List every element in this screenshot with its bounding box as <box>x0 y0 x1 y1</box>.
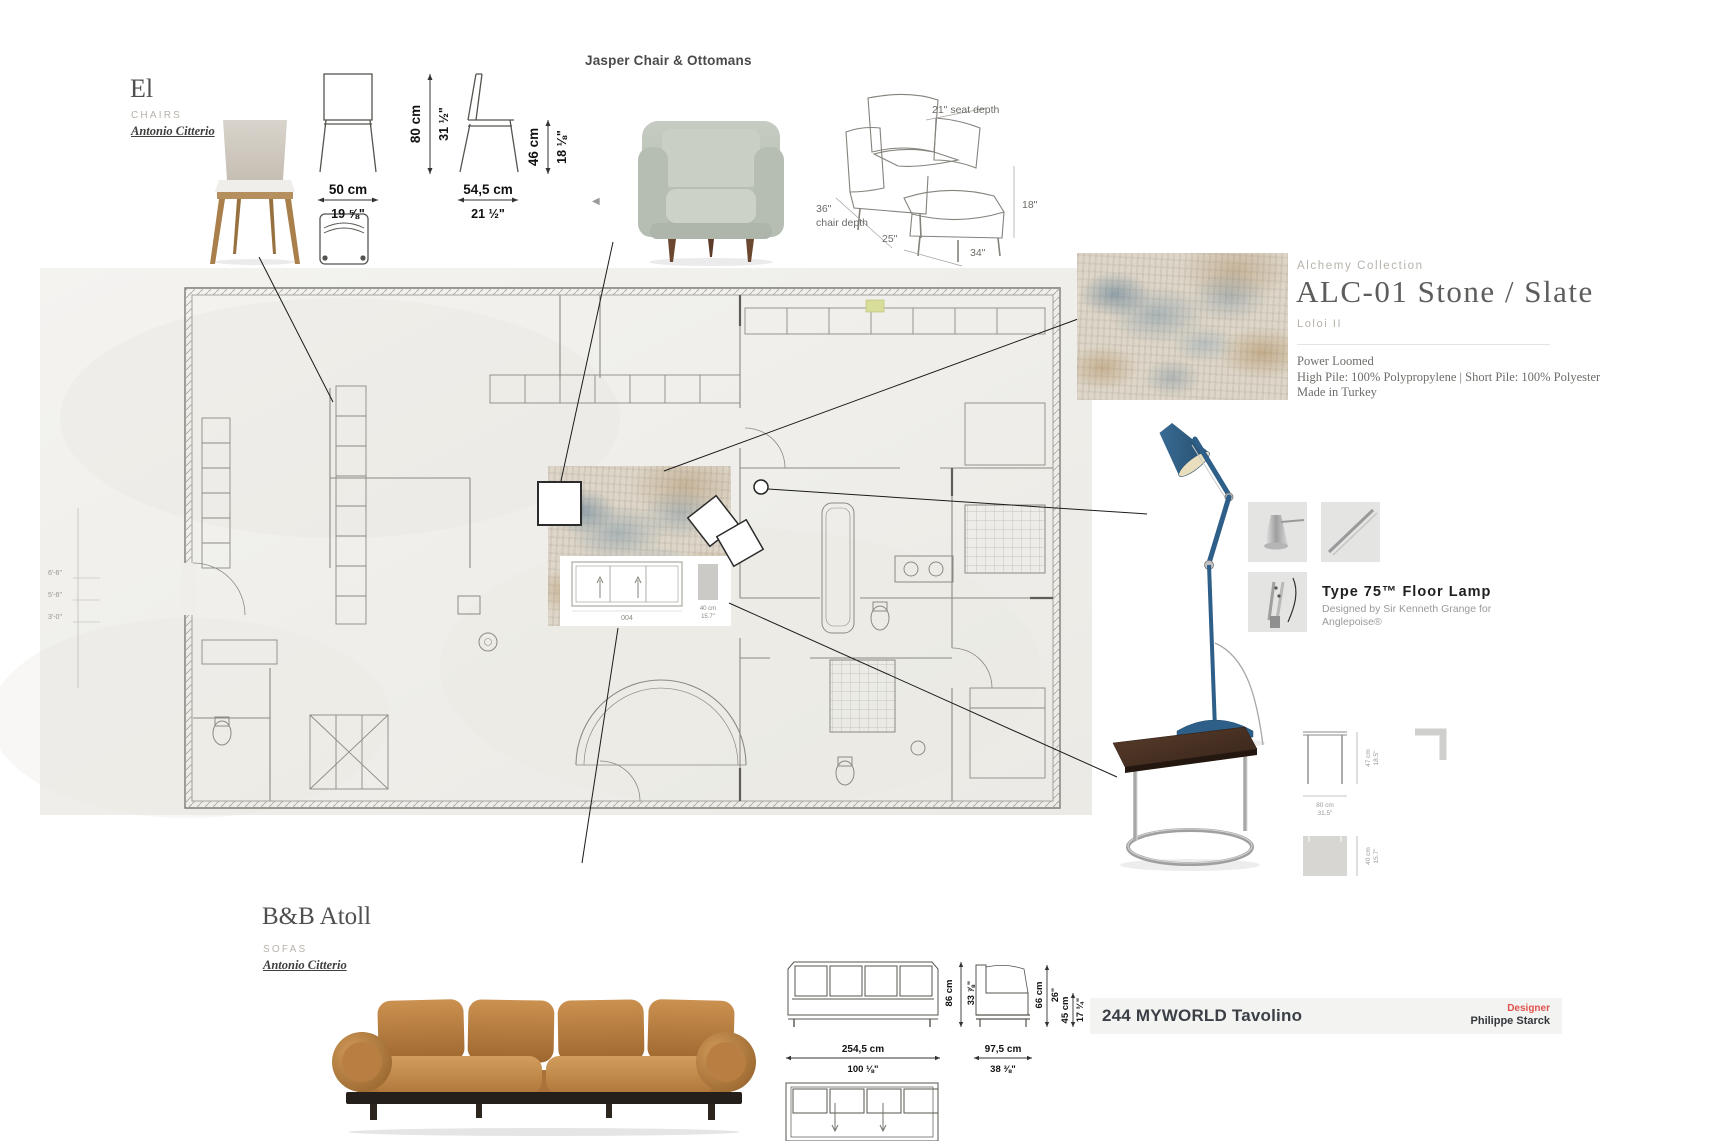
atoll-height-cm: 86 cm <box>944 980 955 1007</box>
lamp-thumb-joint[interactable] <box>1248 572 1307 632</box>
lamp-thumb-arm[interactable] <box>1321 502 1380 562</box>
plan-highlight-marker <box>866 300 884 312</box>
sofa-top-view-mini <box>572 562 682 606</box>
el-height-in: 31 ½" <box>437 107 451 141</box>
atoll-back-height-in: 26" <box>1050 988 1060 1002</box>
side-table-plan-dim-in: 15.7" <box>701 614 715 620</box>
el-seat-height-cm: 46 cm <box>526 128 541 166</box>
plan-dim-note: 6'-6" <box>48 570 62 577</box>
rug-origin: Made in Turkey <box>1297 383 1377 402</box>
jasper-ottoman-height: 18" <box>1022 199 1038 211</box>
side-table-dimension-drawing: 47 cm 18.5" 80 cm 31.5" 40 cm 15.7" <box>1295 718 1470 888</box>
atoll-seat-height-cm: 45 cm <box>1060 997 1071 1024</box>
side-table-designer-label: Designer <box>1471 1003 1550 1016</box>
atoll-title: B&B Atoll <box>262 903 371 931</box>
side-table-designer-name: Philippe Starck <box>1471 1015 1550 1029</box>
rug-divider <box>1297 344 1550 345</box>
table-width-in: 31.5" <box>1318 810 1334 817</box>
jasper-ottoman-depth: 25" <box>882 233 898 245</box>
jasper-seat-depth: 21" seat depth <box>932 104 1000 116</box>
side-table-plan-dim-cm: 40 cm <box>700 606 716 612</box>
atoll-height-in: 33 ⅞" <box>966 981 976 1005</box>
side-table-photo[interactable] <box>1095 715 1290 880</box>
side-table-title-bar: 244 MYWORLD Tavolino Designer Philippe S… <box>1090 998 1562 1034</box>
rug-collection: Alchemy Collection <box>1297 260 1424 272</box>
side-table-name: 244 MYWORLD Tavolino <box>1102 1006 1302 1026</box>
table-depth-cm: 40 cm <box>1365 847 1372 865</box>
side-table-plan-marker <box>698 564 718 600</box>
sofa-plan-panel[interactable]: 004 40 cm 15.7" <box>560 556 731 626</box>
el-dimension-drawing: 50 cm 19 ⅝" 80 cm 31 ½" 54,5 cm 21 ½" 46… <box>310 66 570 276</box>
el-category: CHAIRS <box>131 110 182 121</box>
jasper-chair-photo[interactable] <box>628 103 794 268</box>
el-width-cm: 50 cm <box>329 182 367 197</box>
el-depth-cm: 54,5 cm <box>463 182 513 197</box>
atoll-width-cm: 254,5 cm <box>842 1044 884 1055</box>
el-title: El <box>130 74 153 104</box>
table-depth-in: 15.7" <box>1373 848 1380 864</box>
rug-name: ALC-01 Stone / Slate <box>1296 274 1594 310</box>
jasper-chair-depth-value: 36" <box>816 203 832 215</box>
plan-dim-note: 5'-6" <box>48 592 62 599</box>
jasper-dimension-drawing: 21" seat depth 18" 36" chair depth 25" 3… <box>808 80 1053 270</box>
atoll-back-height-cm: 66 cm <box>1034 982 1045 1009</box>
atoll-dimension-drawing: 86 cm 33 ⅞" 66 cm 26" 45 cm 17 ¾" 254,5 … <box>780 953 1082 1141</box>
plan-dim-note: 3'-0" <box>48 614 62 621</box>
carousel-prev-icon[interactable]: ◀ <box>592 196 600 207</box>
lamp-name: Type 75™ Floor Lamp <box>1322 584 1491 600</box>
plan-marker-dot[interactable] <box>754 480 768 494</box>
jasper-overall-width: 34" <box>970 247 986 259</box>
atoll-category: SOFAS <box>263 944 307 955</box>
lamp-byline-2: Anglepoise® <box>1322 615 1382 629</box>
atoll-width-in: 100 ⅛" <box>848 1064 879 1075</box>
table-width-cm: 80 cm <box>1316 802 1334 809</box>
el-chair-photo[interactable] <box>203 116 307 266</box>
el-height-cm: 80 cm <box>408 105 423 143</box>
rug-brand: Loloi II <box>1297 318 1342 330</box>
rug-sample-image[interactable] <box>1077 253 1288 400</box>
atoll-sofa-photo[interactable] <box>326 970 762 1138</box>
table-height-in: 18.5" <box>1373 750 1380 766</box>
atoll-seat-height-in: 17 ¾" <box>1075 998 1085 1022</box>
jasper-chair-depth-label: chair depth <box>816 217 868 229</box>
lamp-thumb-shade[interactable] <box>1248 502 1307 562</box>
jasper-title: Jasper Chair & Ottomans <box>585 53 752 68</box>
el-depth-in: 21 ½" <box>471 207 505 221</box>
mood-board: 6'-6" 5'-6" 3'-0" 004 40 cm 15.7" <box>0 0 1717 1141</box>
sofa-plan-tag: 004 <box>621 615 633 622</box>
table-height-cm: 47 cm <box>1365 749 1372 767</box>
atoll-depth-in: 38 ⅜" <box>990 1064 1016 1075</box>
el-width-in: 19 ⅝" <box>331 207 365 221</box>
el-seat-height-in: 18 ⅛" <box>555 130 569 164</box>
plan-marker-square[interactable] <box>538 482 581 525</box>
atoll-depth-cm: 97,5 cm <box>985 1044 1022 1055</box>
